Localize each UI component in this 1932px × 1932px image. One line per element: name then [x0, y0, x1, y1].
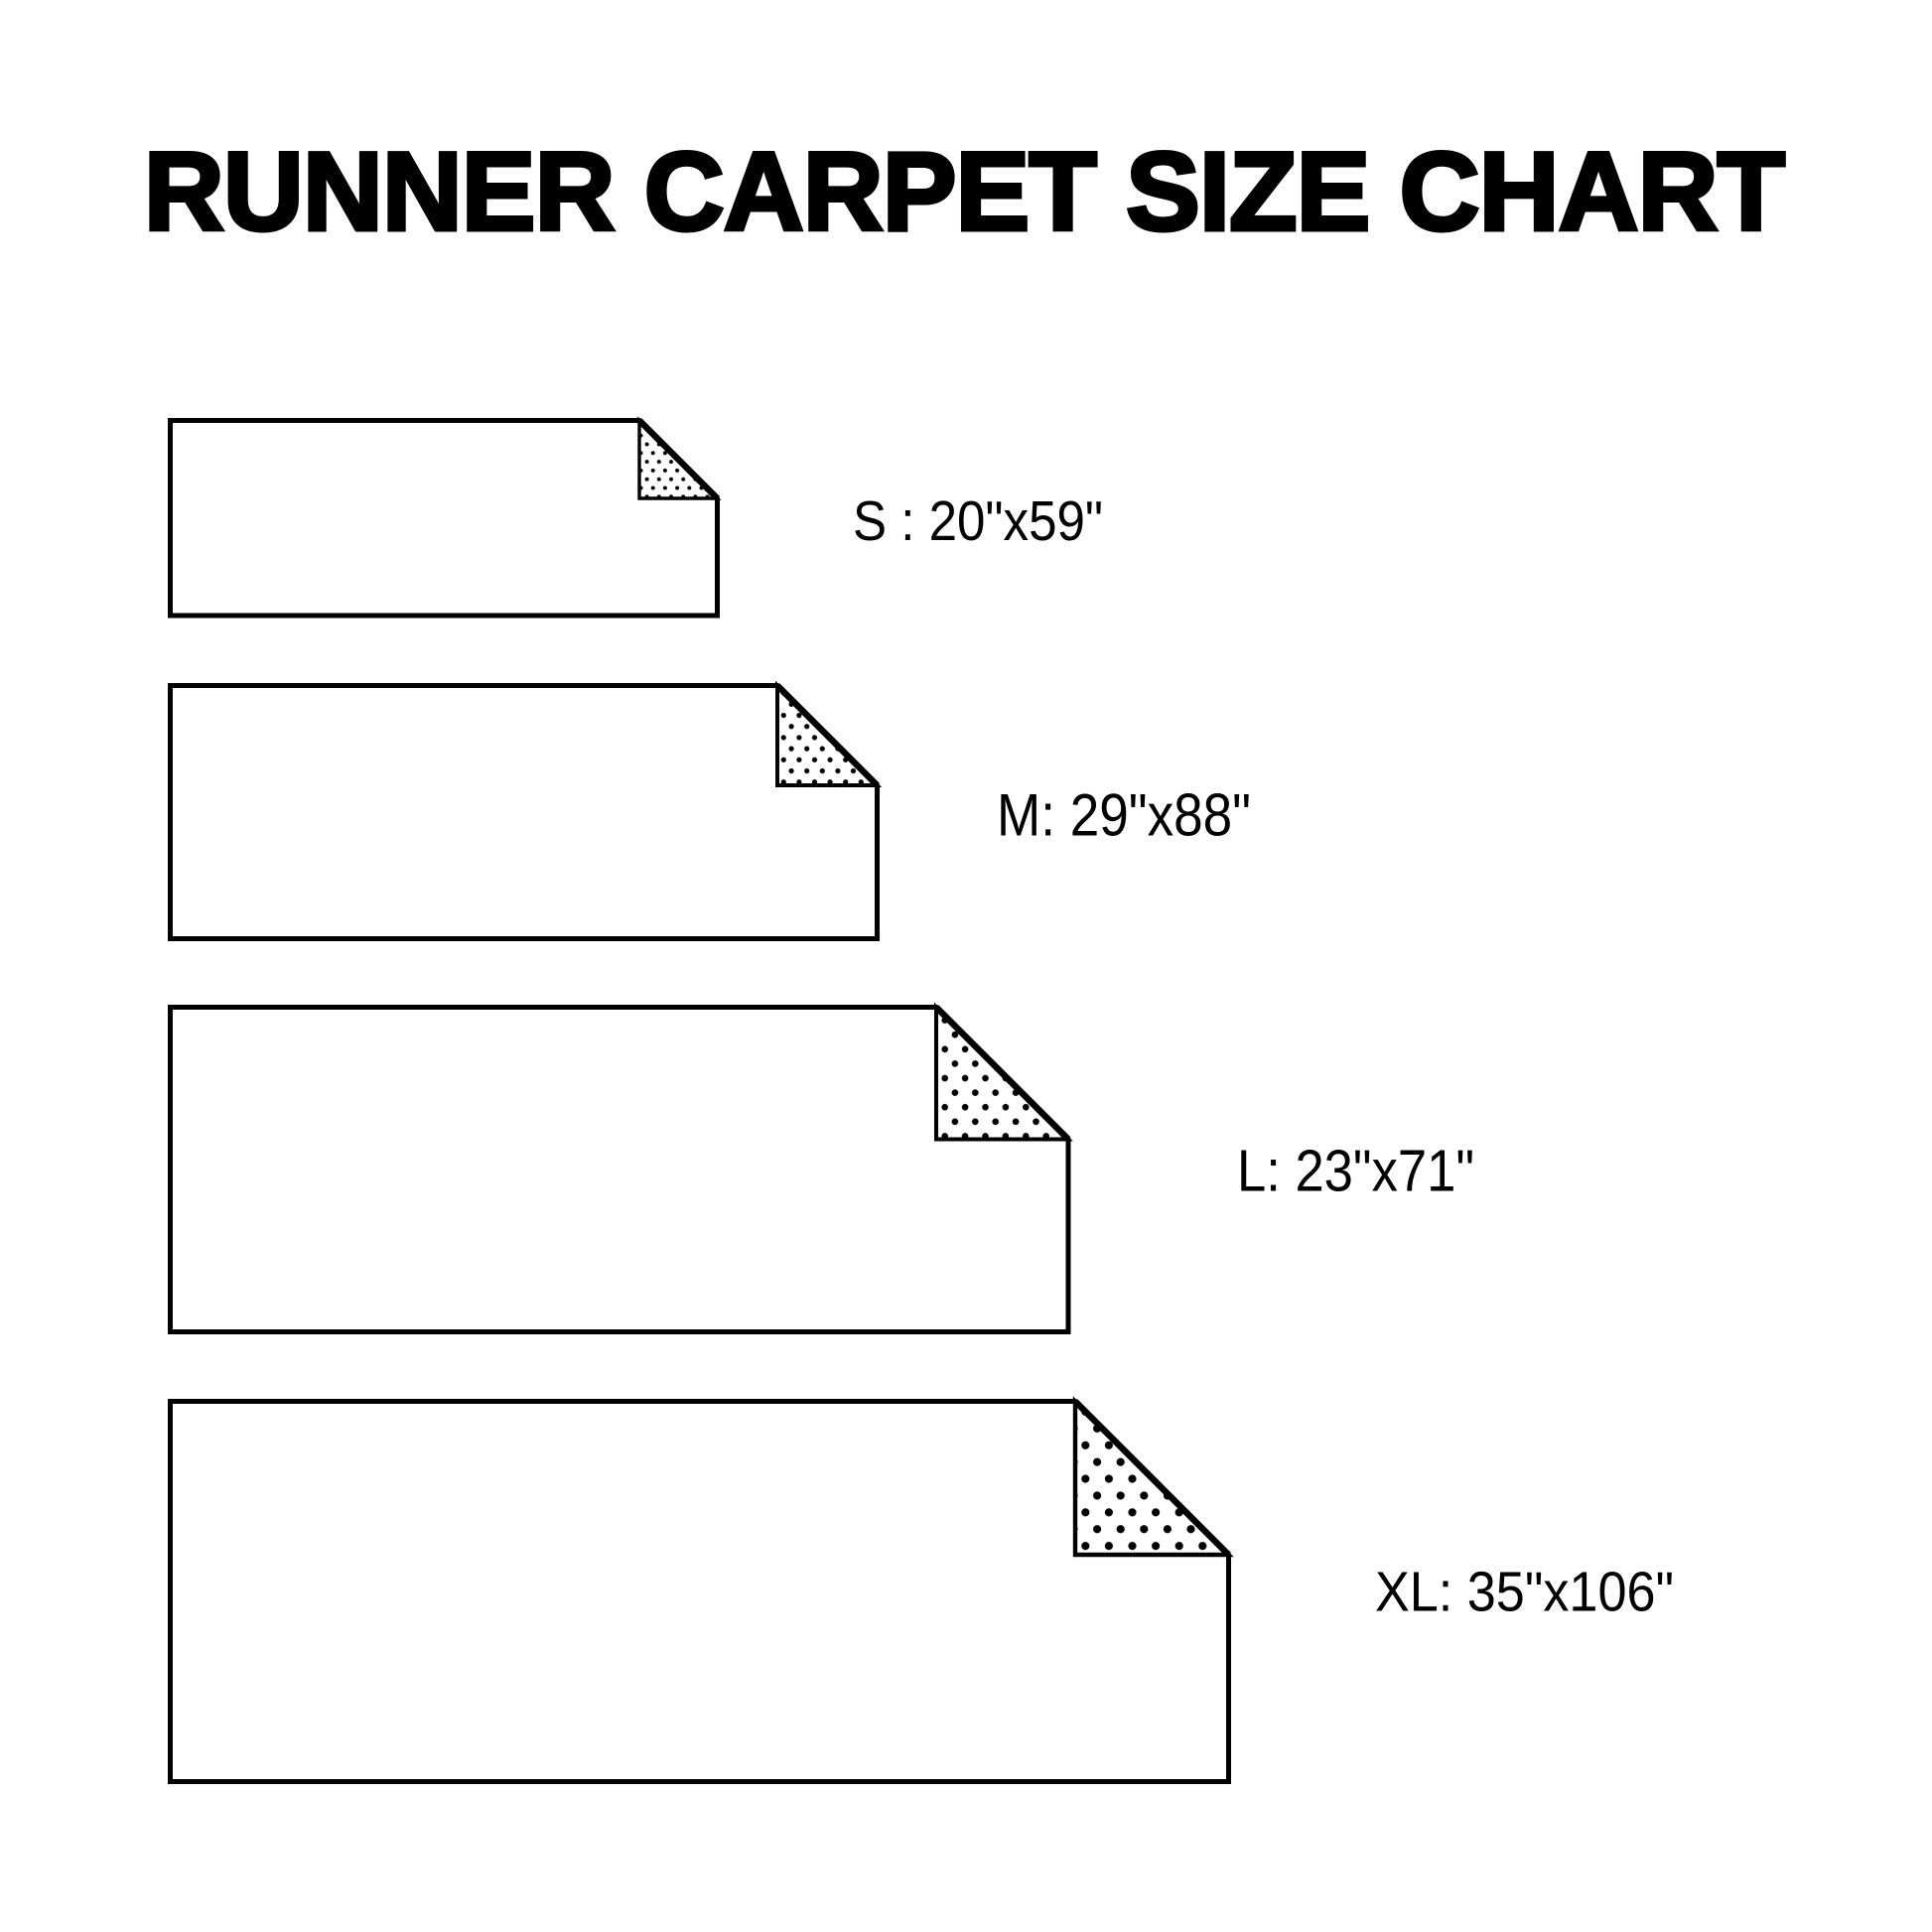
svg-text:XL: 35"x106": XL: 35"x106" — [1375, 1561, 1674, 1624]
svg-text:L: 23"x71": L: 23"x71" — [1237, 1139, 1474, 1204]
svg-text:S : 20"x59": S : 20"x59" — [853, 489, 1103, 553]
svg-text:RUNNER CARPET SIZE CHART: RUNNER CARPET SIZE CHART — [144, 130, 1785, 254]
svg-text:M: 29"x88": M: 29"x88" — [997, 781, 1251, 849]
